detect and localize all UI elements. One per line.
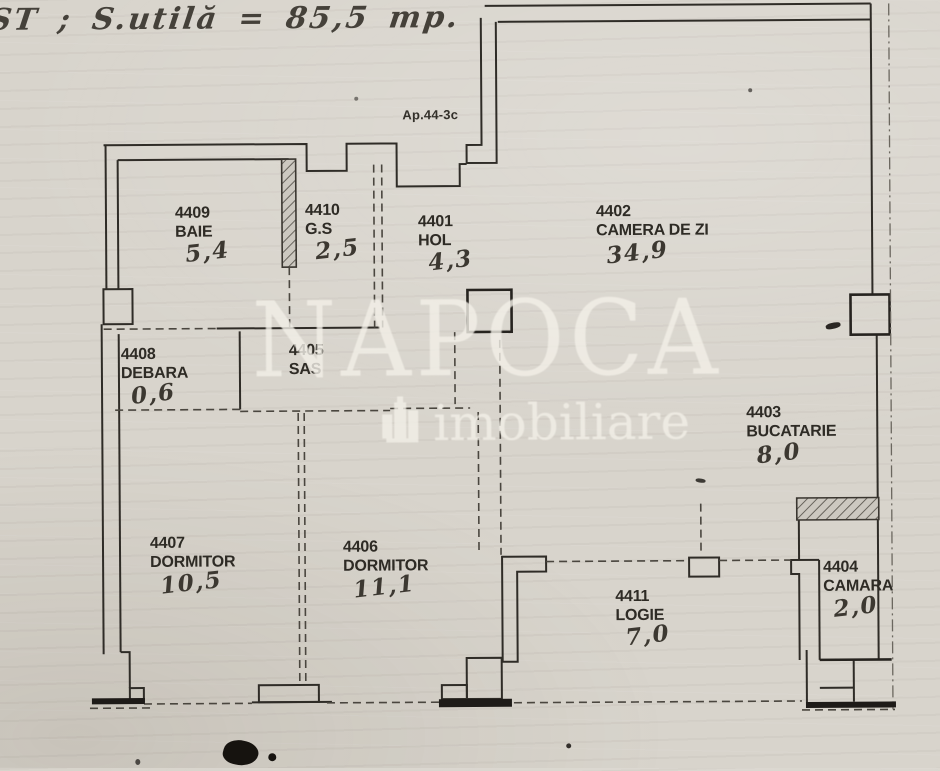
- room-label-dormitor-4407: 4407 DORMITOR 10,5: [150, 533, 236, 592]
- scan-artifact: [135, 759, 140, 765]
- floorplan: ST ; S.utilă = 85,5 mp. Ap.44-3c 4409 BA…: [0, 0, 940, 771]
- watermark-brand-text: NAPOCA: [251, 284, 722, 393]
- scan-artifact: [354, 97, 358, 101]
- room-id: 4408: [121, 345, 188, 364]
- scan-artifact: [748, 88, 752, 92]
- scan-artifact: [566, 743, 571, 748]
- room-area-handwritten: 2,5: [314, 237, 360, 261]
- room-label-baie: 4409 BAIE 5,4: [175, 203, 230, 261]
- room-label-dormitor-4406: 4406 DORMITOR 11,1: [343, 537, 429, 596]
- room-id: 4406: [343, 537, 428, 557]
- room-area-handwritten: 2,0: [832, 593, 894, 619]
- room-id: 4401: [418, 212, 473, 231]
- building-icon: [380, 396, 424, 449]
- room-label-bucatarie: 4403 BUCATARIE 8,0: [746, 403, 836, 462]
- room-label-logie: 4411 LOGIE 7,0: [615, 587, 670, 645]
- room-label-gs: 4410 G.S 2,5: [305, 201, 360, 259]
- scan-artifact: [268, 753, 276, 761]
- room-id: 4409: [175, 203, 230, 222]
- room-label-camara: 4404 CAMARA 2,0: [823, 557, 893, 615]
- room-id: 4402: [596, 202, 709, 222]
- room-area-handwritten: 0,6: [130, 381, 189, 406]
- room-label-camera-de-zi: 4402 CAMERA DE ZI 34,9: [596, 202, 709, 261]
- room-area-handwritten: 5,4: [184, 240, 230, 264]
- watermark: NAPOCA imobiliare: [251, 284, 758, 450]
- room-id: 4411: [615, 587, 670, 606]
- room-label-hol: 4401 HOL 4,3: [418, 212, 473, 270]
- room-label-debara: 4408 DEBARA 0,6: [121, 345, 189, 403]
- room-area-handwritten: 7,0: [625, 624, 671, 648]
- room-id: 4407: [150, 533, 235, 553]
- room-id: 4410: [305, 201, 360, 220]
- handwritten-area-note: ST ; S.utilă = 85,5 mp.: [0, 0, 462, 38]
- room-area-handwritten: 4,3: [427, 249, 473, 273]
- watermark-subtitle-text: imobiliare: [433, 396, 690, 448]
- room-id: 4403: [746, 403, 836, 423]
- apartment-reference: Ap.44-3c: [402, 107, 458, 122]
- scanned-floor-plan: { "meta": { "title_handwritten": "ST ; S…: [0, 0, 940, 768]
- room-id: 4404: [823, 557, 893, 576]
